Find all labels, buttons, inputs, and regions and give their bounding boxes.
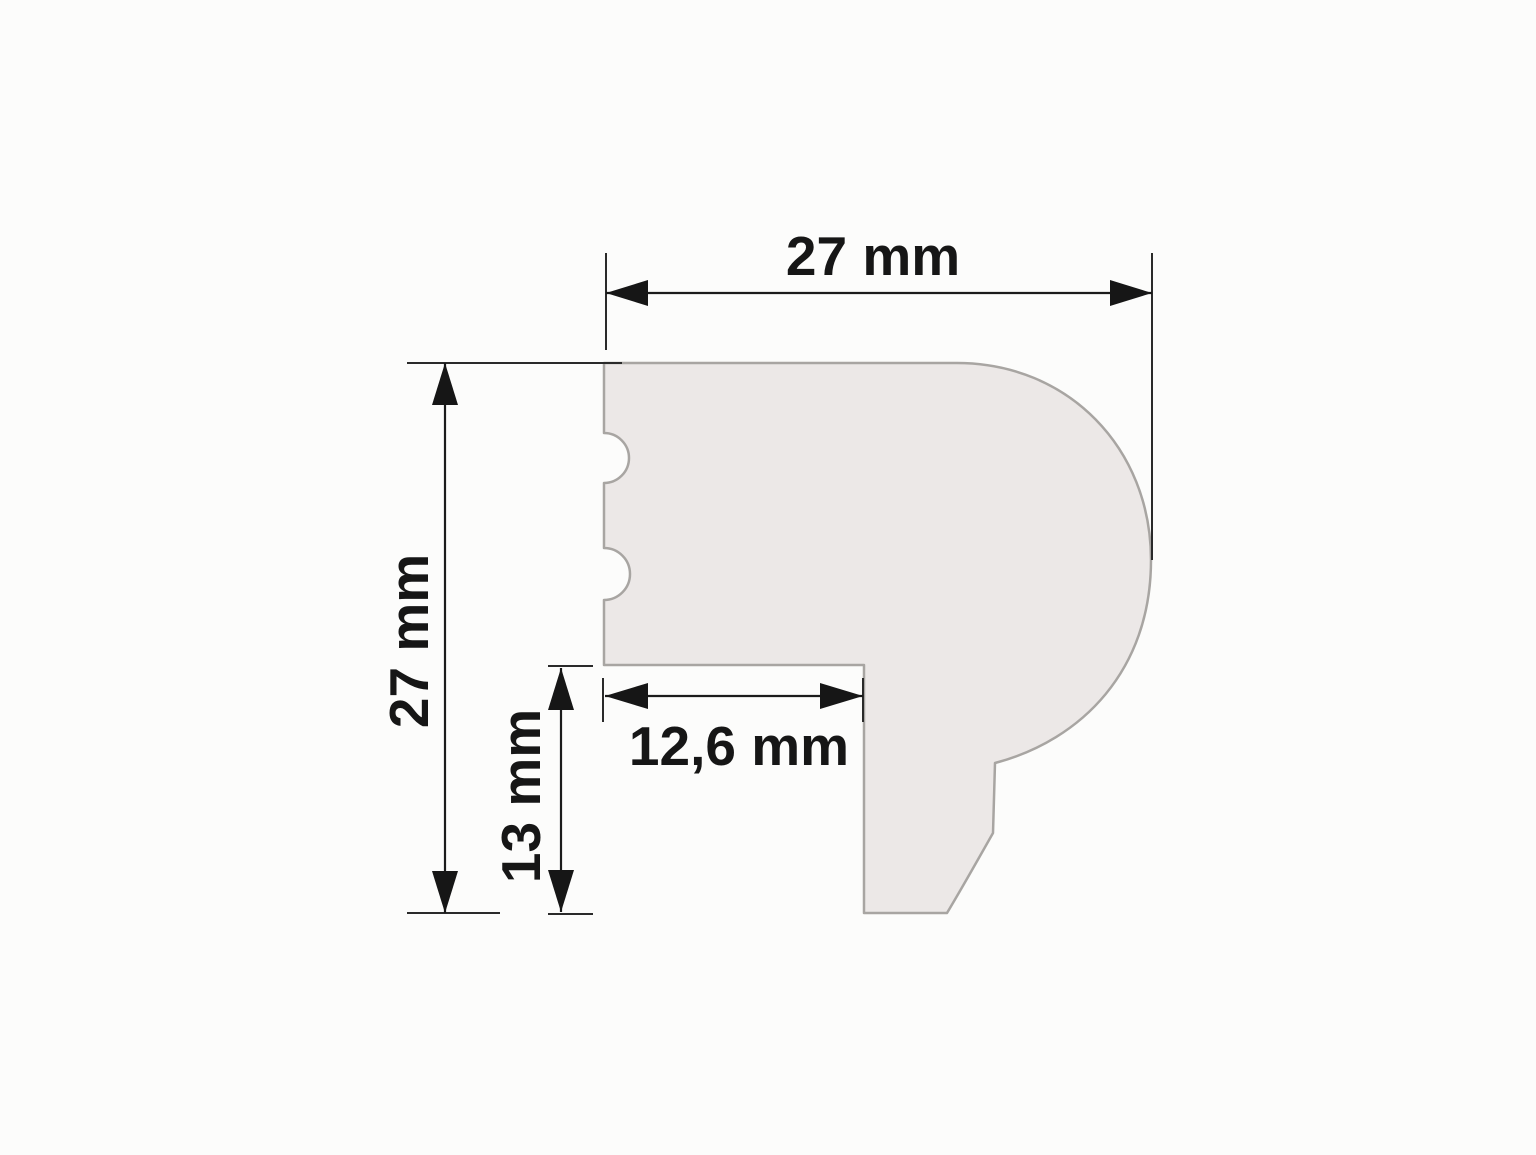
- arrowhead-up-icon: [548, 668, 574, 710]
- arrowhead-left-icon: [605, 683, 648, 709]
- profile-cross-section-svg: 27 mm 27 mm 13 mm 12,6 mm: [0, 0, 1536, 1155]
- profile-shape: [604, 363, 1151, 913]
- arrowhead-right-icon: [820, 683, 863, 709]
- arrowhead-down-icon: [432, 871, 458, 913]
- left-height-label: 27 mm: [378, 554, 440, 728]
- arrowhead-left-icon: [606, 280, 648, 306]
- leg-height-dimension: 13 mm: [490, 666, 593, 914]
- leg-height-label: 13 mm: [490, 709, 552, 883]
- technical-drawing: 27 mm 27 mm 13 mm 12,6 mm: [0, 0, 1536, 1155]
- arrowhead-up-icon: [432, 363, 458, 405]
- step-width-dimension: 12,6 mm: [603, 678, 863, 777]
- step-width-label: 12,6 mm: [629, 715, 849, 777]
- top-width-label: 27 mm: [786, 225, 960, 287]
- arrowhead-right-icon: [1110, 280, 1152, 306]
